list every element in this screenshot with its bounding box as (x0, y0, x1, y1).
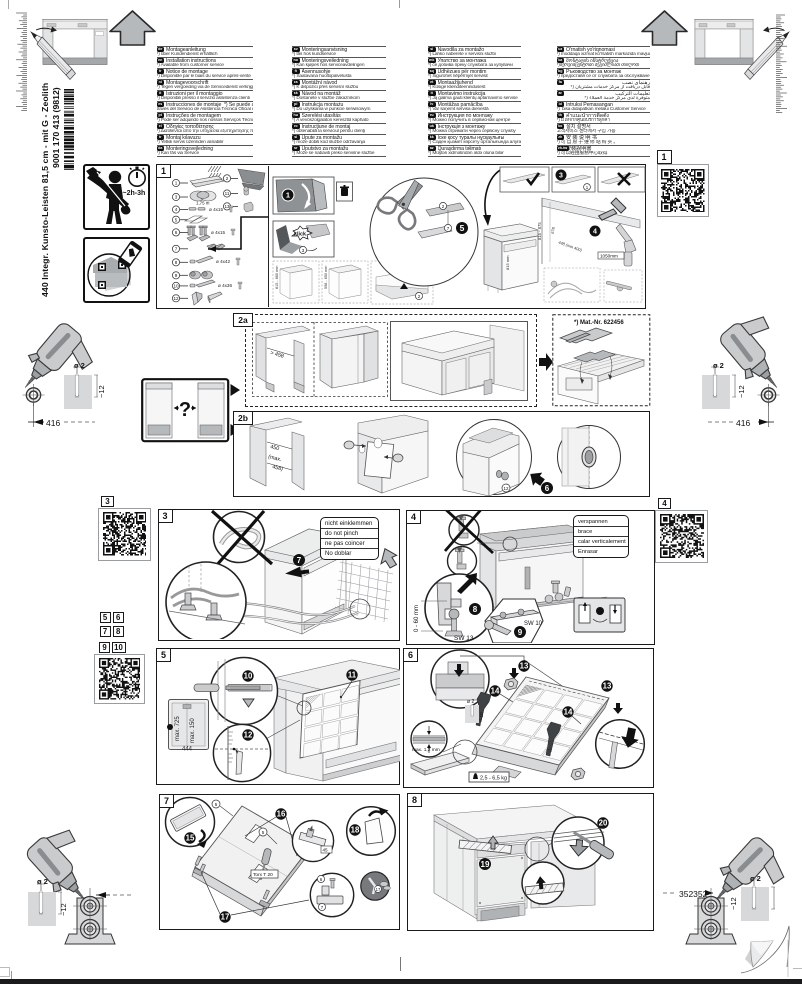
svg-text:448 (min 400): 448 (min 400) (558, 240, 584, 253)
svg-text:max. 725: max. 725 (175, 716, 181, 741)
svg-text:ø 2: ø 2 (37, 877, 48, 886)
svg-text:3: 3 (559, 173, 563, 180)
svg-text:13: 13 (520, 662, 529, 671)
svg-text:416: 416 (736, 418, 750, 428)
svg-text:815 - 860 mm: 815 - 860 mm (275, 266, 279, 289)
svg-text:1050mm: 1050mm (600, 253, 618, 258)
svg-text:~12: ~12 (737, 385, 746, 398)
svg-text:10: 10 (244, 672, 253, 681)
svg-text:416: 416 (46, 418, 60, 428)
svg-text:9: 9 (518, 627, 523, 636)
svg-text:0 - 60 mm: 0 - 60 mm (414, 604, 420, 631)
svg-text:14: 14 (491, 687, 500, 696)
svg-text:max. 1,2 mm: max. 1,2 mm (412, 747, 440, 753)
svg-text:~12: ~12 (59, 903, 68, 916)
svg-text:11: 11 (348, 671, 357, 680)
svg-text:ø 2: ø 2 (750, 874, 761, 883)
svg-text:7: 7 (296, 556, 301, 565)
svg-text:45: 45 (323, 848, 329, 853)
svg-text:815 mm: 815 mm (505, 255, 510, 270)
svg-text:SW 10: SW 10 (524, 621, 543, 627)
svg-text:5: 5 (215, 802, 218, 807)
svg-text:444: 444 (182, 747, 193, 753)
svg-text:max. 150: max. 150 (190, 718, 196, 743)
svg-text:18: 18 (351, 826, 360, 835)
svg-text:ø 2: ø 2 (713, 361, 724, 370)
svg-text:8: 8 (473, 604, 478, 613)
svg-text:13: 13 (603, 682, 612, 691)
svg-text:4: 4 (593, 229, 597, 236)
svg-text:12: 12 (244, 731, 253, 740)
svg-text:598 - 650 mm: 598 - 650 mm (324, 266, 328, 289)
svg-text:6: 6 (545, 484, 550, 493)
svg-text:20: 20 (599, 819, 608, 828)
svg-text:12: 12 (503, 486, 509, 491)
svg-text:678: 678 (550, 226, 556, 234)
svg-text:~12: ~12 (729, 897, 738, 910)
svg-text:19: 19 (481, 860, 490, 869)
svg-text:~10: ~10 (479, 712, 484, 720)
svg-text:2,5 - 6,5 kg: 2,5 - 6,5 kg (480, 776, 507, 782)
svg-text:15: 15 (186, 834, 195, 843)
svg-text:815 - 875: 815 - 875 (537, 222, 542, 240)
svg-text:458): 458) (272, 464, 284, 472)
svg-text:(max.: (max. (268, 454, 283, 463)
svg-text:~2h-3h: ~2h-3h (123, 190, 146, 197)
svg-text:5: 5 (262, 830, 265, 835)
svg-text:17: 17 (376, 887, 381, 892)
svg-text:1: 1 (286, 191, 290, 200)
svg-text:SW 13: SW 13 (454, 635, 474, 642)
svg-text:?: ? (179, 399, 191, 421)
svg-text:16: 16 (277, 810, 286, 819)
svg-text:17: 17 (221, 913, 230, 922)
svg-text:klick: klick (294, 232, 306, 238)
svg-text:~12: ~12 (97, 385, 106, 398)
svg-text:Torx T 20: Torx T 20 (253, 872, 273, 878)
svg-text:ø 2: ø 2 (74, 361, 85, 370)
svg-text:14: 14 (564, 708, 573, 717)
svg-text:352352: 352352 (679, 889, 708, 899)
svg-text:ø 2: ø 2 (467, 699, 474, 705)
svg-text:*) Mat.-Nr. 622456: *) Mat.-Nr. 622456 (574, 320, 624, 326)
